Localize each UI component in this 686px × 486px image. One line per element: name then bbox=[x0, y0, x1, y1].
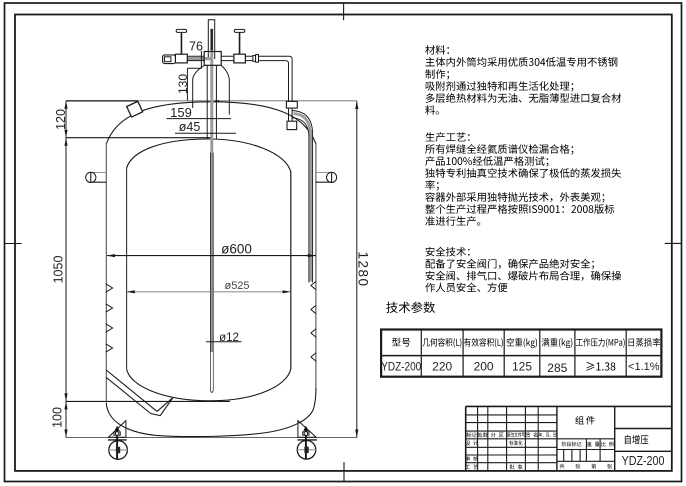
svg-text:130: 130 bbox=[176, 74, 190, 94]
svg-text:1050: 1050 bbox=[52, 256, 66, 284]
svg-text:159: 159 bbox=[170, 105, 192, 120]
svg-text:100: 100 bbox=[51, 407, 65, 428]
svg-text:200: 200 bbox=[474, 360, 494, 374]
svg-text:1280: 1280 bbox=[356, 251, 371, 287]
svg-text:76: 76 bbox=[189, 40, 203, 54]
svg-text:ø600: ø600 bbox=[221, 242, 252, 257]
svg-text:ø12: ø12 bbox=[219, 332, 239, 344]
svg-text:YDZ-200: YDZ-200 bbox=[622, 454, 665, 468]
svg-text:220: 220 bbox=[432, 360, 452, 374]
svg-text:<1.1%: <1.1% bbox=[628, 361, 660, 373]
svg-text:125: 125 bbox=[512, 360, 532, 374]
svg-text:285: 285 bbox=[547, 361, 567, 375]
svg-text:ø525: ø525 bbox=[224, 280, 249, 292]
svg-text:ø45: ø45 bbox=[179, 120, 201, 134]
svg-text:120: 120 bbox=[54, 109, 68, 130]
svg-text:YDZ-200: YDZ-200 bbox=[381, 361, 421, 374]
